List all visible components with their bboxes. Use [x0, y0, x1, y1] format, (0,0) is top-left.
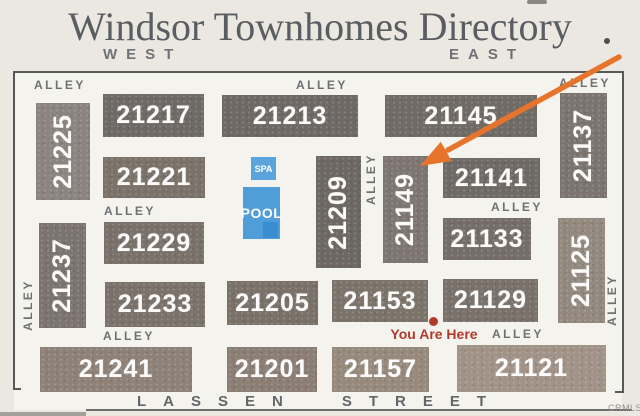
map-border-foot-left [13, 388, 21, 390]
building-number: 21149 [391, 173, 420, 246]
building-21241: 21241 [40, 347, 192, 392]
building-21225: 21225 [36, 103, 90, 200]
building-21213: 21213 [222, 95, 358, 137]
building-number: 21133 [450, 225, 523, 254]
alley-label: ALLEY [559, 76, 611, 90]
alley-label: ALLEY [21, 279, 35, 331]
building-21209: 21209 [316, 156, 361, 268]
building-number: 21129 [454, 286, 527, 315]
sign-title: Windsor Townhomes Directory [0, 3, 640, 50]
building-21157: 21157 [332, 347, 429, 392]
alley-label: ALLEY [296, 78, 348, 92]
building-21229: 21229 [104, 222, 204, 264]
photo-artifact-mark [527, 0, 547, 4]
east-label: EAST [449, 46, 525, 63]
building-number: 21241 [79, 355, 154, 384]
building-21217: 21217 [103, 94, 204, 137]
street-word-lassen: LASSEN [137, 393, 300, 410]
building-number: 21141 [455, 164, 528, 193]
building-21133: 21133 [443, 218, 531, 260]
photo-edge-shadow [0, 412, 86, 416]
alley-label: ALLEY [104, 204, 156, 218]
building-number: 21137 [569, 109, 598, 182]
directory-sign: Windsor Townhomes Directory WEST EAST SP… [0, 0, 640, 416]
alley-label: ALLEY [492, 327, 544, 341]
building-number: 21233 [118, 290, 193, 319]
building-21121: 21121 [457, 345, 606, 392]
street-edge-line [86, 409, 632, 411]
building-number: 21201 [235, 355, 310, 384]
building-number: 21153 [343, 287, 416, 316]
building-21233: 21233 [105, 282, 205, 327]
building-number: 21213 [253, 102, 328, 131]
building-number: 21237 [48, 238, 77, 313]
sign-nail-dot [604, 38, 610, 44]
pool-label: POOL [241, 205, 283, 221]
building-number: 21217 [116, 101, 191, 130]
building-number: 21209 [324, 175, 353, 250]
map-border-right [622, 71, 624, 393]
pool-step-detail [263, 222, 278, 238]
building-number: 21145 [424, 102, 497, 131]
watermark: CRMLS [608, 403, 640, 413]
building-21145: 21145 [385, 95, 537, 137]
alley-label: ALLEY [605, 274, 619, 326]
building-number: 21205 [235, 289, 310, 318]
building-21205: 21205 [227, 281, 318, 325]
alley-label: ALLEY [34, 78, 86, 92]
building-number: 21229 [117, 229, 192, 258]
building-number: 21125 [567, 234, 596, 307]
building-21221: 21221 [103, 157, 205, 198]
street-word-street: STREET [342, 393, 503, 410]
building-21153: 21153 [332, 280, 428, 322]
building-number: 21121 [495, 354, 568, 383]
spa-marker: SPA [251, 157, 276, 180]
alley-label: ALLEY [103, 329, 155, 343]
building-number: 21221 [117, 163, 192, 192]
map-border-left [13, 71, 15, 389]
alley-label: ALLEY [364, 153, 378, 205]
map-border-top [13, 71, 624, 73]
alley-label: ALLEY [491, 200, 543, 214]
street-name: LASSEN STREET [0, 393, 640, 410]
west-label: WEST [103, 46, 182, 63]
building-21129: 21129 [443, 279, 538, 322]
building-21125: 21125 [558, 218, 605, 323]
building-21137: 21137 [560, 93, 607, 198]
building-21201: 21201 [227, 347, 317, 392]
building-21141: 21141 [443, 158, 540, 198]
you-are-here-label: You Are Here [390, 326, 477, 342]
building-21149: 21149 [383, 156, 428, 263]
you-are-here-dot [429, 317, 438, 326]
building-number: 21225 [49, 114, 78, 189]
building-21237: 21237 [39, 223, 86, 328]
pool-marker: POOL [243, 187, 280, 239]
building-number: 21157 [344, 355, 417, 384]
